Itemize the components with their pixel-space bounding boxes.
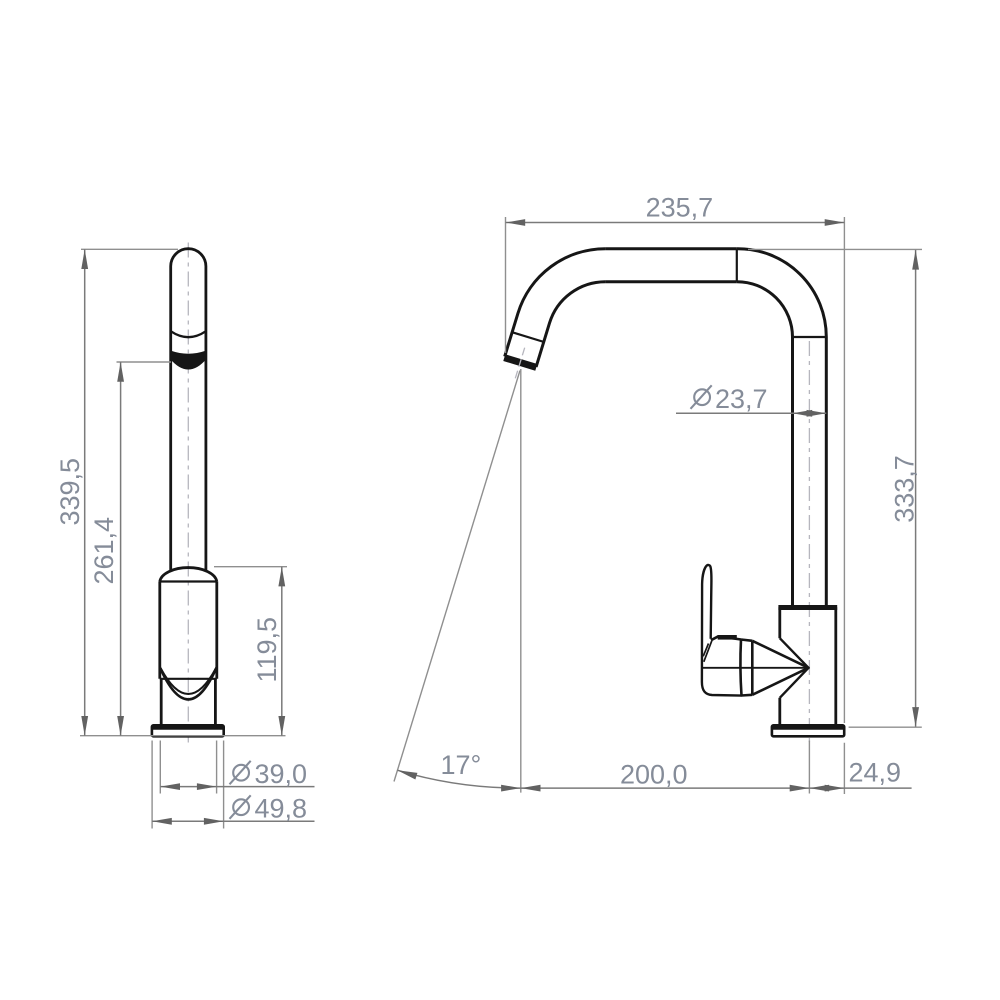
svg-text:333,7: 333,7 bbox=[889, 455, 919, 523]
svg-text:23,7: 23,7 bbox=[715, 384, 768, 414]
svg-text:17°: 17° bbox=[441, 750, 482, 780]
svg-text:339,5: 339,5 bbox=[55, 458, 85, 526]
svg-text:39,0: 39,0 bbox=[255, 759, 308, 789]
svg-text:235,7: 235,7 bbox=[646, 193, 714, 223]
svg-text:200,0: 200,0 bbox=[620, 760, 688, 790]
svg-text:119,5: 119,5 bbox=[252, 617, 282, 683]
svg-text:24,9: 24,9 bbox=[849, 758, 902, 788]
svg-text:49,8: 49,8 bbox=[255, 794, 308, 824]
svg-text:261,4: 261,4 bbox=[89, 517, 119, 585]
